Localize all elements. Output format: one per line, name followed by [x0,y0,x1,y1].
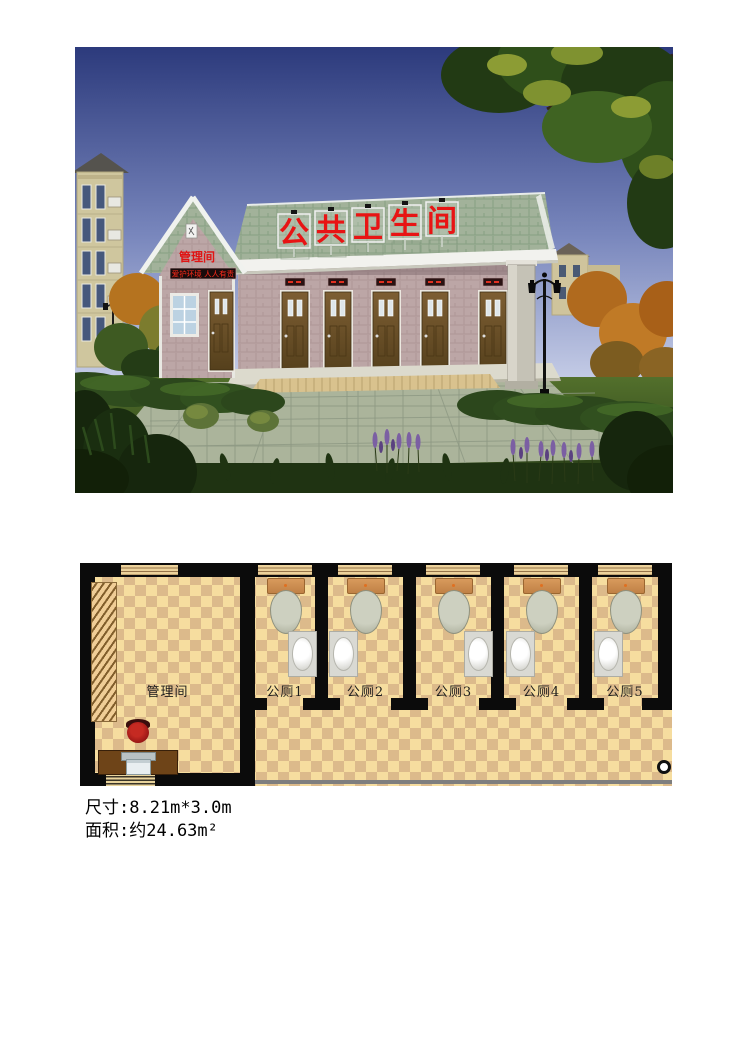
wall-divider-2 [403,577,416,710]
sink-icon [506,631,535,677]
shelf-rack-icon [91,582,117,722]
building-rendering: 公 共 卫 生 间 管理间 [75,47,673,493]
sink-icon [288,631,317,677]
roof-sign-char-3: 卫 [353,210,383,245]
toilet-icon [523,578,559,634]
window-stall-2 [338,565,392,575]
room-label-stall-1: 公厕1 [255,681,315,700]
window-management [121,565,178,575]
management-window [170,293,199,337]
rendering-scene: 公 共 卫 生 间 管理间 [75,47,673,493]
room-label-stall-5: 公厕5 [592,681,658,700]
wall-right [658,563,672,710]
window-stall-5 [598,565,652,575]
size-spec: 尺寸:8.21m*3.0m [85,797,232,820]
office-chair-icon [125,719,151,744]
room-label-management: 管理间 [95,681,240,700]
window-stall-3 [426,565,480,575]
room-label-stall-4: 公厕4 [504,681,579,700]
sink-icon [594,631,623,677]
sink-icon [329,631,358,677]
design-document-page: 公 共 卫 生 间 管理间 [0,0,745,1053]
specifications: 尺寸:8.21m*3.0m 面积:约24.63m² [85,797,232,843]
roof-sign-char-2: 共 [316,213,346,248]
toilet-icon [435,578,471,634]
sink-icon [464,631,493,677]
area-spec: 面积:约24.63m² [85,820,232,843]
toilet-icon [267,578,303,634]
wall-divider-4 [579,577,592,710]
management-room-sign: 管理间 [179,249,215,264]
led-banner-text: 爱护环境 人人有责 [172,269,235,279]
roof-sign-char-1: 公 [279,216,309,251]
floor-plan: 管理间 公厕1 公厕2 公厕3 公厕4 公厕5 [80,563,672,786]
window-stall-4 [514,565,568,575]
toilet-icon [607,578,643,634]
window-stall-1 [258,565,312,575]
main-building: 公 共 卫 生 间 管理间 [141,193,561,393]
led-banner: 爱护环境 人人有责 [170,268,236,279]
management-door [208,290,235,372]
wall-management-right [240,563,255,786]
toilet-icon [347,578,383,634]
desk-icon [98,750,178,775]
entrance-threshold [106,774,155,786]
room-label-stall-2: 公厕2 [328,681,403,700]
roof-sign-char-4: 生 [390,207,420,242]
roof-sign-char-5: 间 [427,204,457,239]
room-label-stall-3: 公厕3 [416,681,491,700]
porch-pillar [505,260,538,389]
floor-drain-icon [657,760,671,774]
